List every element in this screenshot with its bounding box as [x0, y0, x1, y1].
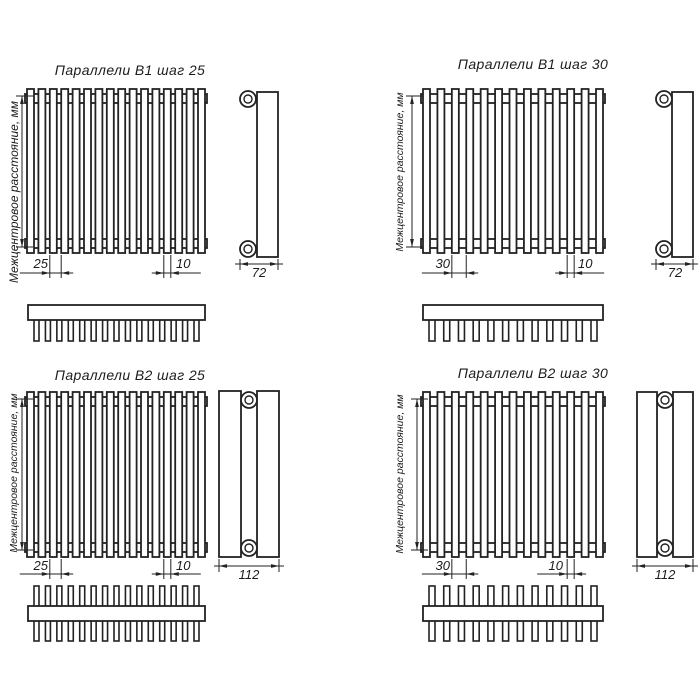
depth-dimension-b1-30: 72: [668, 266, 682, 279]
tube-width-dimension-b1-25: 10: [176, 257, 190, 270]
panel-b2-step-30: [411, 392, 698, 641]
vertical-axis-label-b1-30: Межцентровое расстояние, мм: [395, 92, 406, 251]
panel-title-b2-25: Параллели В2 шаг 25: [55, 368, 205, 382]
technical-drawing-canvas: [0, 0, 700, 700]
front-view-b1-step-30: [421, 89, 605, 253]
panel-b1-step-30: [406, 89, 698, 341]
tube-width-dimension-b2-25: 10: [176, 559, 190, 572]
panel-b1-step-25: [16, 89, 283, 341]
center-distance-dimension-b1-step-30: [406, 96, 423, 247]
step-dimension-b1-25: 25: [34, 257, 48, 270]
step-dimension-b2-25: 25: [34, 559, 48, 572]
side-view-b1-step-30: [656, 91, 693, 257]
vertical-axis-label-b2-25: Межцентровое расстояние, мм: [9, 393, 20, 552]
side-view-b2-step-30: [637, 392, 693, 557]
depth-dimension-b2-30: 112: [655, 568, 676, 581]
side-view-b1-step-25: [240, 91, 278, 257]
vertical-axis-label-b2-30: Межцентровое расстояние, мм: [395, 394, 406, 553]
drawing-sheet: Параллели В1 шаг 25 Параллели В1 шаг 30 …: [0, 0, 700, 700]
panel-b2-step-25: [16, 391, 284, 641]
front-view-b1-step-25: [25, 89, 207, 253]
vertical-axis-label-b1-25: Межцентровое расстояние, мм: [8, 101, 20, 283]
depth-dimension-b2-25: 112: [239, 568, 260, 581]
tube-width-dimension-b1-30: 10: [578, 257, 592, 270]
tube-width-dimension-b2-30: 10: [549, 559, 563, 572]
panel-title-b1-25: Параллели В1 шаг 25: [55, 63, 205, 77]
step-dimension-b1-30: 30: [436, 257, 450, 270]
panel-title-b1-30: Параллели В1 шаг 30: [458, 57, 608, 71]
top-view-b2-step-30: [423, 586, 603, 641]
top-view-b2-step-25: [28, 586, 205, 641]
side-view-b2-step-25: [219, 391, 279, 557]
depth-dimension-b1-25: 72: [252, 266, 266, 279]
step-dimension-b2-30: 30: [436, 559, 450, 572]
front-view-b2-step-30: [421, 392, 605, 557]
front-view-b2-step-25: [25, 392, 207, 557]
panel-title-b2-30: Параллели В2 шаг 30: [458, 366, 608, 380]
top-view-b1-step-25: [28, 305, 205, 341]
top-view-b1-step-30: [423, 305, 603, 341]
